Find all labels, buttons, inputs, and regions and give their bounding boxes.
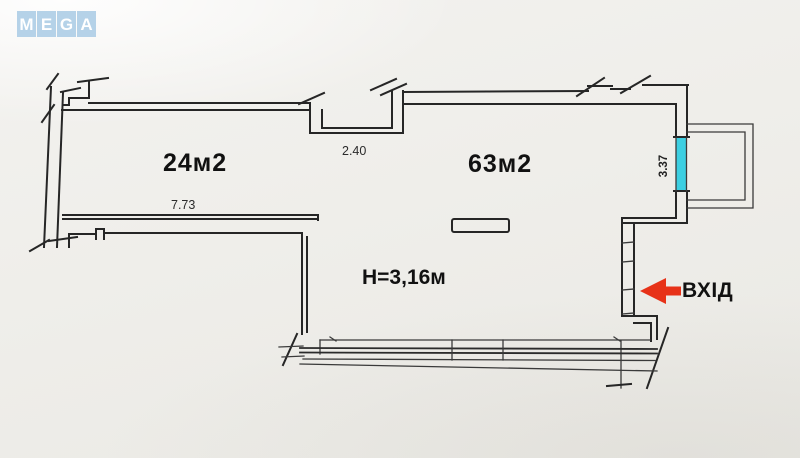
room-area-label-63: 63м2 xyxy=(468,150,532,179)
column-outline xyxy=(452,219,509,232)
floor-plan-page: M E G A xyxy=(0,0,800,458)
dimension-notch-width: 2.40 xyxy=(342,144,366,158)
ceiling-height-label: H=3,16м xyxy=(362,266,446,290)
bottom-window-band xyxy=(279,334,657,371)
dimension-room-width: 7.73 xyxy=(171,198,195,212)
entrance-label: ВХІД xyxy=(682,279,733,303)
dimension-window-length: 3.37 xyxy=(658,146,670,186)
entrance-arrow-icon xyxy=(640,278,681,304)
window-highlight xyxy=(674,137,689,191)
balcony-outline xyxy=(687,124,753,208)
floor-plan-drawing xyxy=(0,0,800,458)
room-area-label-24: 24м2 xyxy=(163,149,227,178)
entrance-steps xyxy=(607,328,668,388)
window-glass xyxy=(677,138,688,191)
wall-lines xyxy=(30,74,688,341)
